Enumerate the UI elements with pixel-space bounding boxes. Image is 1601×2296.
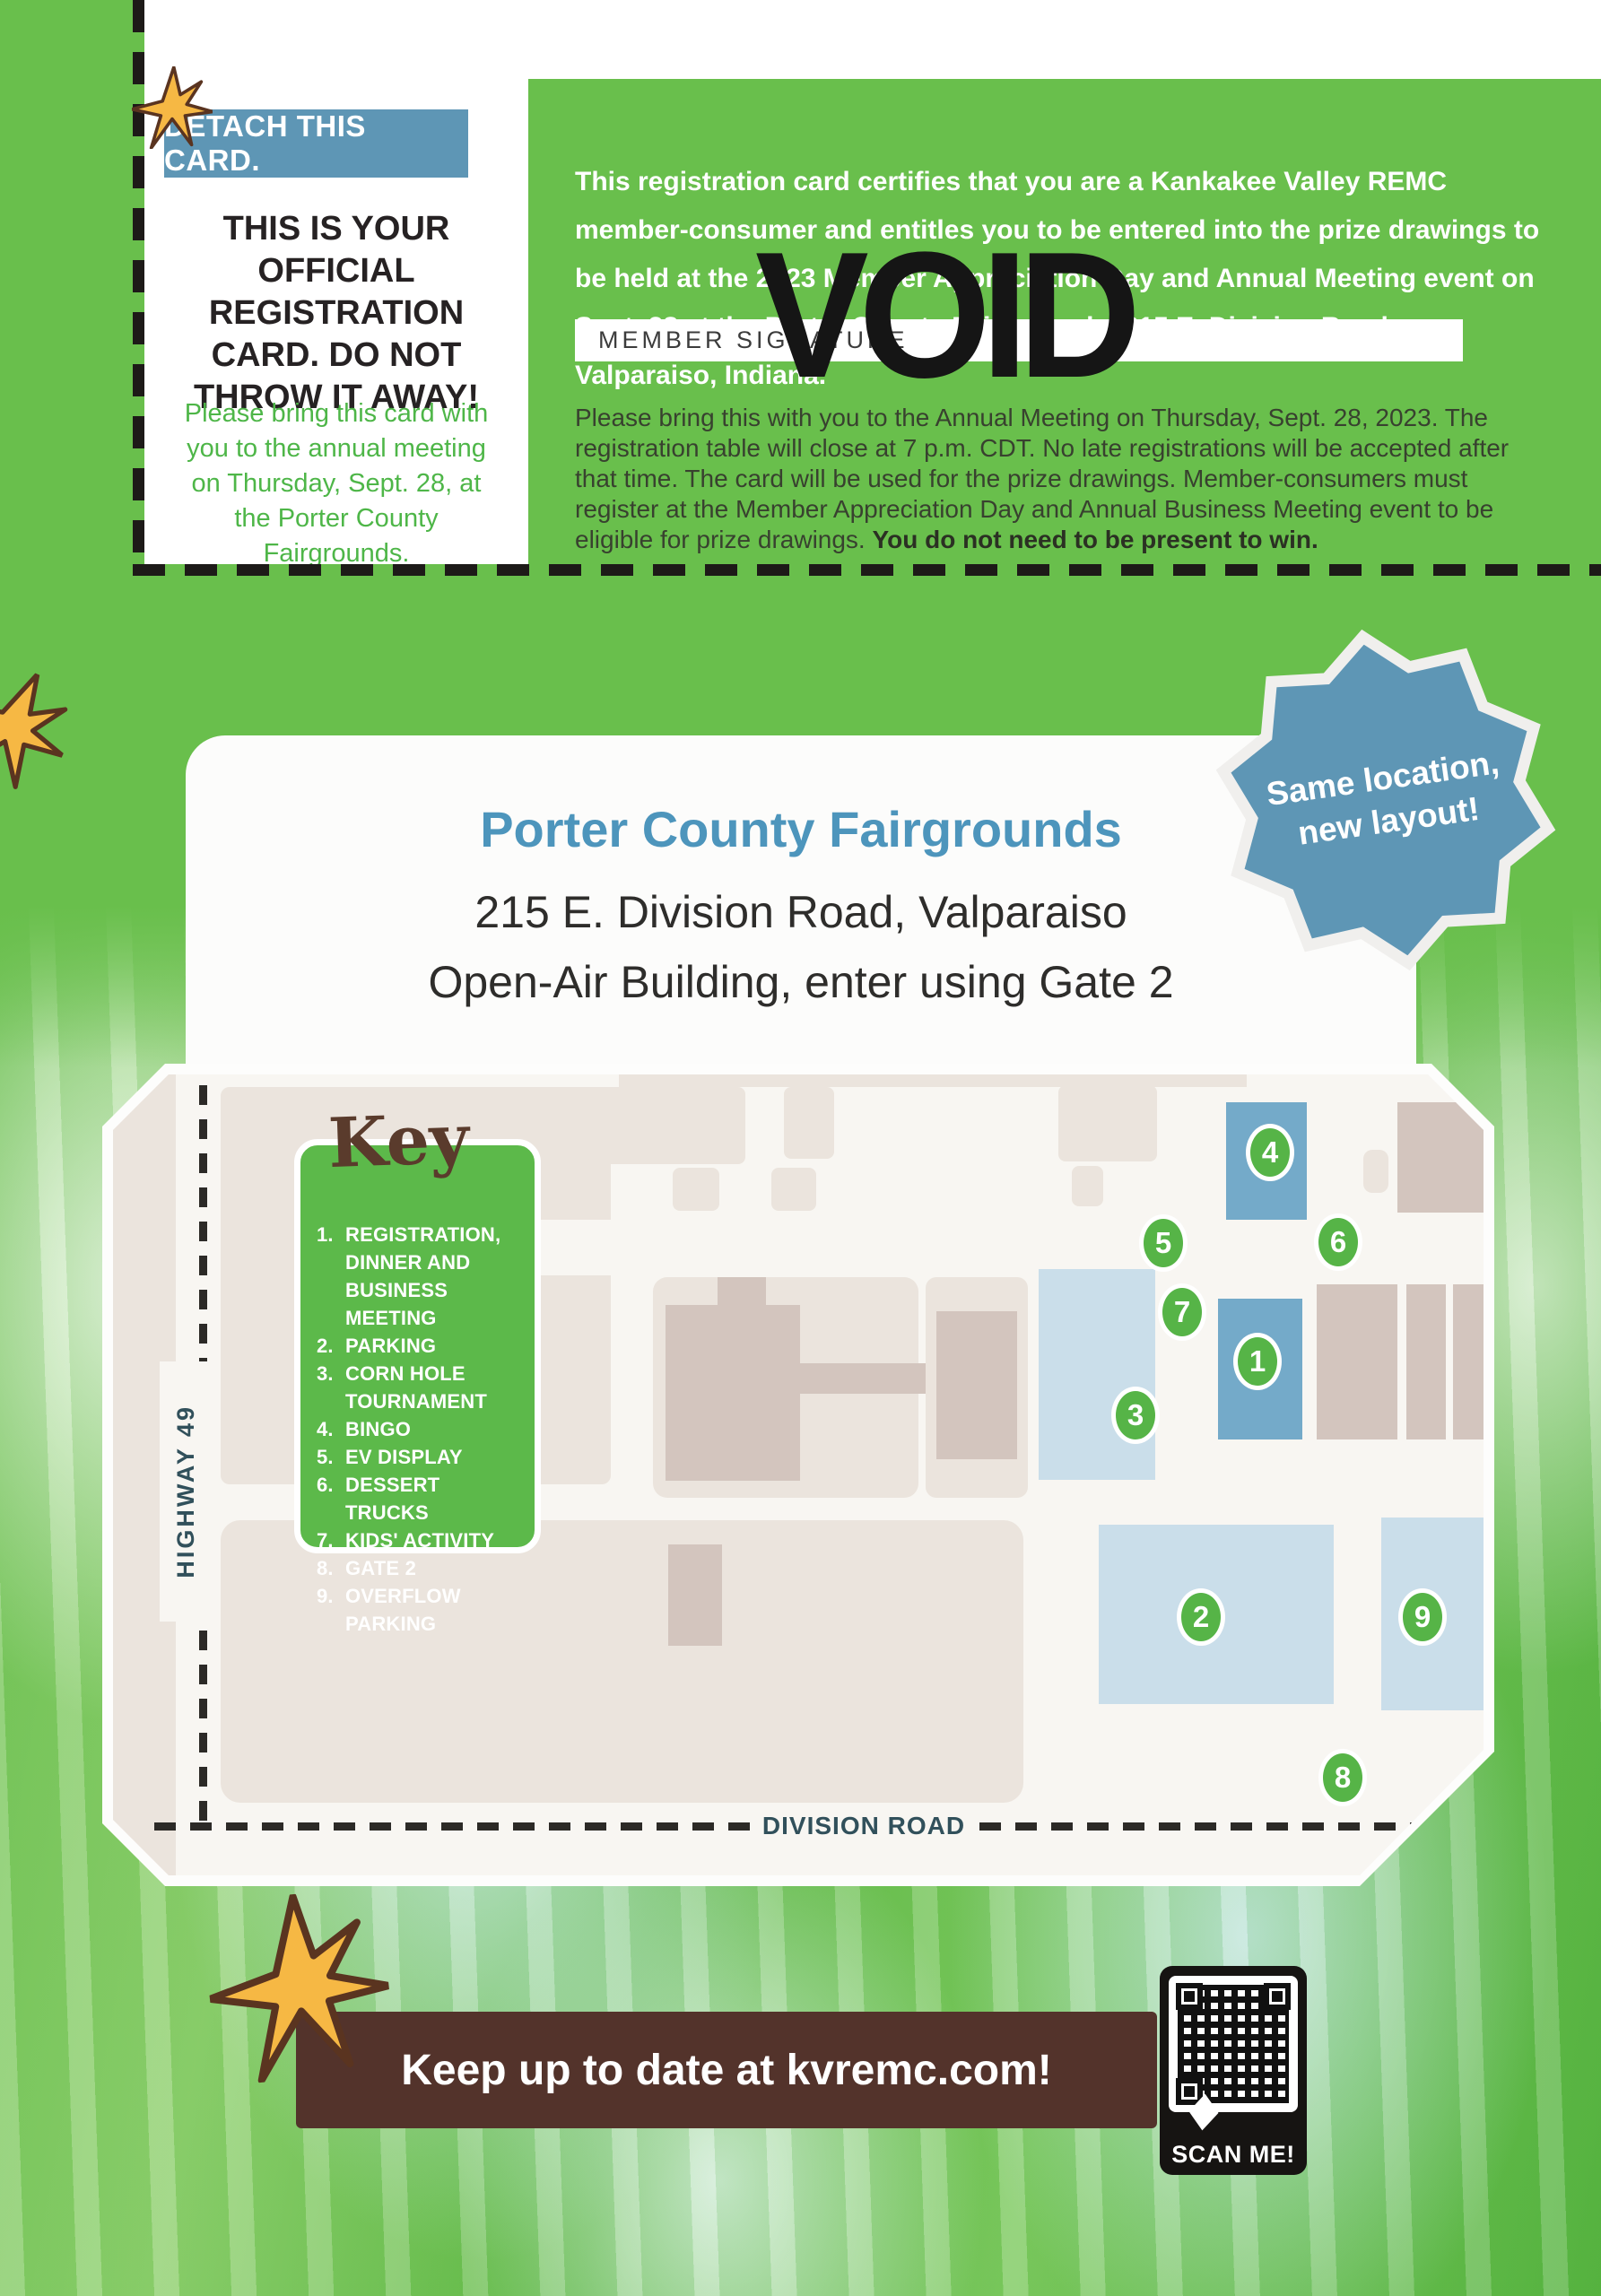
map-building bbox=[1406, 1284, 1446, 1439]
map-parcel bbox=[673, 1168, 719, 1211]
fairgrounds-map: HIGHWAY 49 DIVISION ROAD 1.REGISTRATION,… bbox=[102, 1064, 1494, 1886]
website-banner-text: Keep up to date at kvremc.com! bbox=[401, 2046, 1052, 2095]
map-key-item-number: 3. bbox=[317, 1360, 334, 1387]
meeting-info-text: Please bring this with you to the Annual… bbox=[575, 403, 1557, 555]
location-badge: Same location, new layout! bbox=[1191, 605, 1580, 995]
map-key-item: 4.BINGO bbox=[317, 1415, 526, 1443]
map-key-box: 1.REGISTRATION, DINNER AND BUSINESS MEET… bbox=[294, 1139, 541, 1553]
map-building bbox=[798, 1363, 942, 1394]
map-surface: HIGHWAY 49 DIVISION ROAD 1.REGISTRATION,… bbox=[113, 1074, 1484, 1875]
perforation-line-horizontal bbox=[133, 564, 1601, 576]
map-marker-9: 9 bbox=[1398, 1588, 1447, 1646]
map-key-item-label: BINGO bbox=[345, 1418, 411, 1440]
map-key-item-label: GATE 2 bbox=[345, 1557, 416, 1579]
map-key-item-number: 6. bbox=[317, 1471, 334, 1499]
map-building bbox=[668, 1544, 722, 1646]
map-building bbox=[1453, 1284, 1492, 1439]
map-parcel bbox=[588, 1087, 745, 1164]
map-key-item: 5.EV DISPLAY bbox=[317, 1443, 526, 1471]
qr-finder-top-right bbox=[1264, 1983, 1291, 2010]
map-key-item-number: 9. bbox=[317, 1582, 334, 1610]
map-key-item-number: 5. bbox=[317, 1443, 334, 1471]
map-marker-1: 1 bbox=[1233, 1333, 1282, 1390]
map-key-item-number: 4. bbox=[317, 1415, 334, 1443]
map-building bbox=[1317, 1284, 1397, 1439]
void-stamp: VOID bbox=[755, 226, 1131, 405]
card-note: Please bring this card with you to the a… bbox=[144, 396, 528, 571]
map-key-item-label: EV DISPLAY bbox=[345, 1446, 463, 1468]
map-building bbox=[666, 1305, 800, 1481]
sparkle-star-icon bbox=[200, 1885, 397, 2087]
map-marker-8: 8 bbox=[1318, 1749, 1367, 1806]
sparkle-star-icon bbox=[132, 66, 213, 149]
division-road-label: DIVISION ROAD bbox=[752, 1805, 976, 1848]
map-marker-3: 3 bbox=[1111, 1387, 1160, 1444]
qr-scan-label: SCAN ME! bbox=[1160, 2141, 1307, 2169]
map-key-item-number: 1. bbox=[317, 1221, 334, 1248]
map-key-item: 2.PARKING bbox=[317, 1332, 526, 1360]
map-parcel bbox=[1072, 1166, 1103, 1206]
map-key-item-label: REGISTRATION, DINNER AND BUSINESS MEETIN… bbox=[345, 1223, 500, 1329]
card-title: THIS IS YOUR OFFICIAL REGISTRATION CARD.… bbox=[144, 208, 528, 419]
map-marker-6: 6 bbox=[1314, 1213, 1362, 1271]
map-parcel bbox=[771, 1168, 816, 1211]
map-key-item: 1.REGISTRATION, DINNER AND BUSINESS MEET… bbox=[317, 1221, 526, 1332]
map-marker-5: 5 bbox=[1139, 1214, 1188, 1272]
map-key-item: 9.OVERFLOW PARKING bbox=[317, 1582, 526, 1638]
website-banner: Keep up to date at kvremc.com! bbox=[296, 2012, 1157, 2128]
map-key-item-label: OVERFLOW PARKING bbox=[345, 1585, 461, 1635]
map-parcel bbox=[784, 1087, 834, 1159]
map-key-item-number: 2. bbox=[317, 1332, 334, 1360]
highway-49-label: HIGHWAY 49 bbox=[160, 1361, 212, 1622]
highway-49-text: HIGHWAY 49 bbox=[172, 1405, 200, 1578]
map-key-item: 6.DESSERT TRUCKS bbox=[317, 1471, 526, 1526]
map-area-cornhole bbox=[1039, 1269, 1155, 1480]
map-marker-7: 7 bbox=[1158, 1283, 1206, 1341]
map-key-item-number: 8. bbox=[317, 1554, 334, 1582]
map-parcel bbox=[1363, 1150, 1388, 1193]
map-key-item-label: DESSERT TRUCKS bbox=[345, 1474, 439, 1524]
map-key-list: 1.REGISTRATION, DINNER AND BUSINESS MEET… bbox=[317, 1221, 526, 1638]
map-key-item: 3.CORN HOLE TOURNAMENT bbox=[317, 1360, 526, 1415]
map-marker-2: 2 bbox=[1177, 1588, 1225, 1646]
map-key-item-label: PARKING bbox=[345, 1335, 436, 1357]
qr-code-bubble bbox=[1169, 1976, 1298, 2112]
map-marker-4: 4 bbox=[1246, 1124, 1294, 1181]
map-key-title: Key bbox=[327, 1096, 545, 1183]
map-parcel bbox=[1058, 1085, 1157, 1161]
map-key-item: 8.GATE 2 bbox=[317, 1554, 526, 1582]
map-key-item-label: KIDS' ACTIVITY bbox=[345, 1529, 494, 1552]
qr-code-panel[interactable]: SCAN ME! bbox=[1160, 1966, 1307, 2175]
meeting-info-bold: You do not need to be present to win. bbox=[873, 526, 1318, 553]
venue-entry: Open-Air Building, enter using Gate 2 bbox=[186, 956, 1416, 1008]
flyer-page: This registration card certifies that yo… bbox=[0, 0, 1601, 2296]
map-building bbox=[936, 1311, 1017, 1459]
map-key-item-number: 7. bbox=[317, 1526, 334, 1554]
map-key-item-label: CORN HOLE TOURNAMENT bbox=[345, 1362, 487, 1413]
qr-finder-top-left bbox=[1176, 1983, 1203, 2010]
map-building bbox=[718, 1277, 766, 1315]
badge-body: Same location, new layout! bbox=[1208, 622, 1562, 977]
map-key-item: 7.KIDS' ACTIVITY bbox=[317, 1526, 526, 1554]
